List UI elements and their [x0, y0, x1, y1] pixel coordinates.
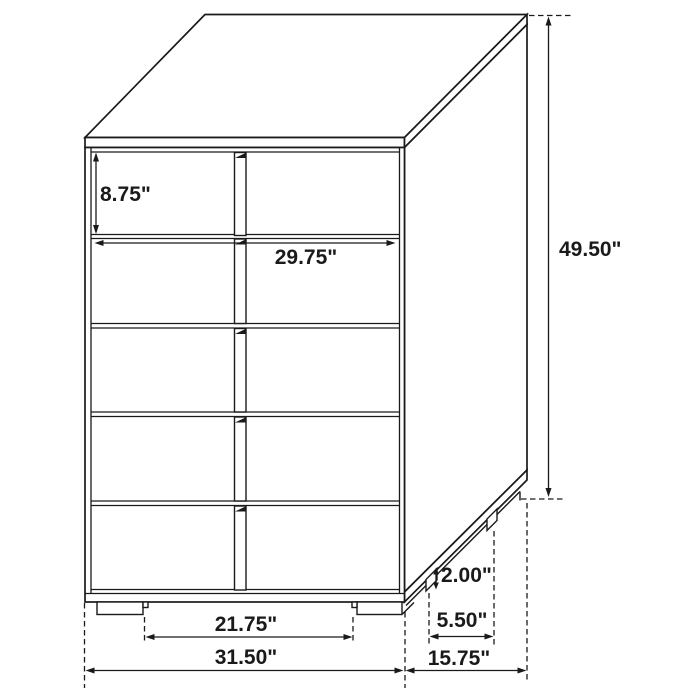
- label-drawer-width: 29.75": [275, 246, 338, 269]
- label-overall-height: 49.50": [559, 238, 622, 261]
- label-base-height: 2.00": [441, 564, 492, 587]
- front-right-foot: [357, 602, 402, 615]
- drawer-handle-3: [235, 329, 247, 413]
- dim-side-leg-spacing: [430, 634, 494, 640]
- drawer-handle-2: [235, 239, 247, 324]
- front-left-foot-step: [143, 602, 148, 608]
- chest-body: [85, 15, 527, 603]
- label-overall-width: 31.50": [215, 646, 278, 669]
- chest-drawing: 8.75" 29.75" 49.50" 2.00" 5.50" 21.75" 3…: [0, 0, 700, 700]
- dimension-diagram: 8.75" 29.75" 49.50" 2.00" 5.50" 21.75" 3…: [0, 0, 700, 700]
- front-left-foot: [97, 602, 143, 615]
- drawer-handle-4: [235, 417, 247, 501]
- front-right-foot-step: [352, 602, 357, 608]
- drawer-handle-5: [235, 506, 247, 590]
- label-overall-depth: 15.75": [428, 647, 491, 670]
- drawer-handles: [235, 153, 247, 591]
- label-side-leg-spacing: 5.50": [437, 609, 488, 632]
- chest-top-edge-front: [85, 138, 405, 148]
- dim-overall-height: [546, 17, 552, 498]
- label-drawer-height: 8.75": [100, 183, 151, 206]
- label-front-leg-spacing: 21.75": [215, 613, 278, 636]
- drawer-handle-1: [235, 153, 247, 236]
